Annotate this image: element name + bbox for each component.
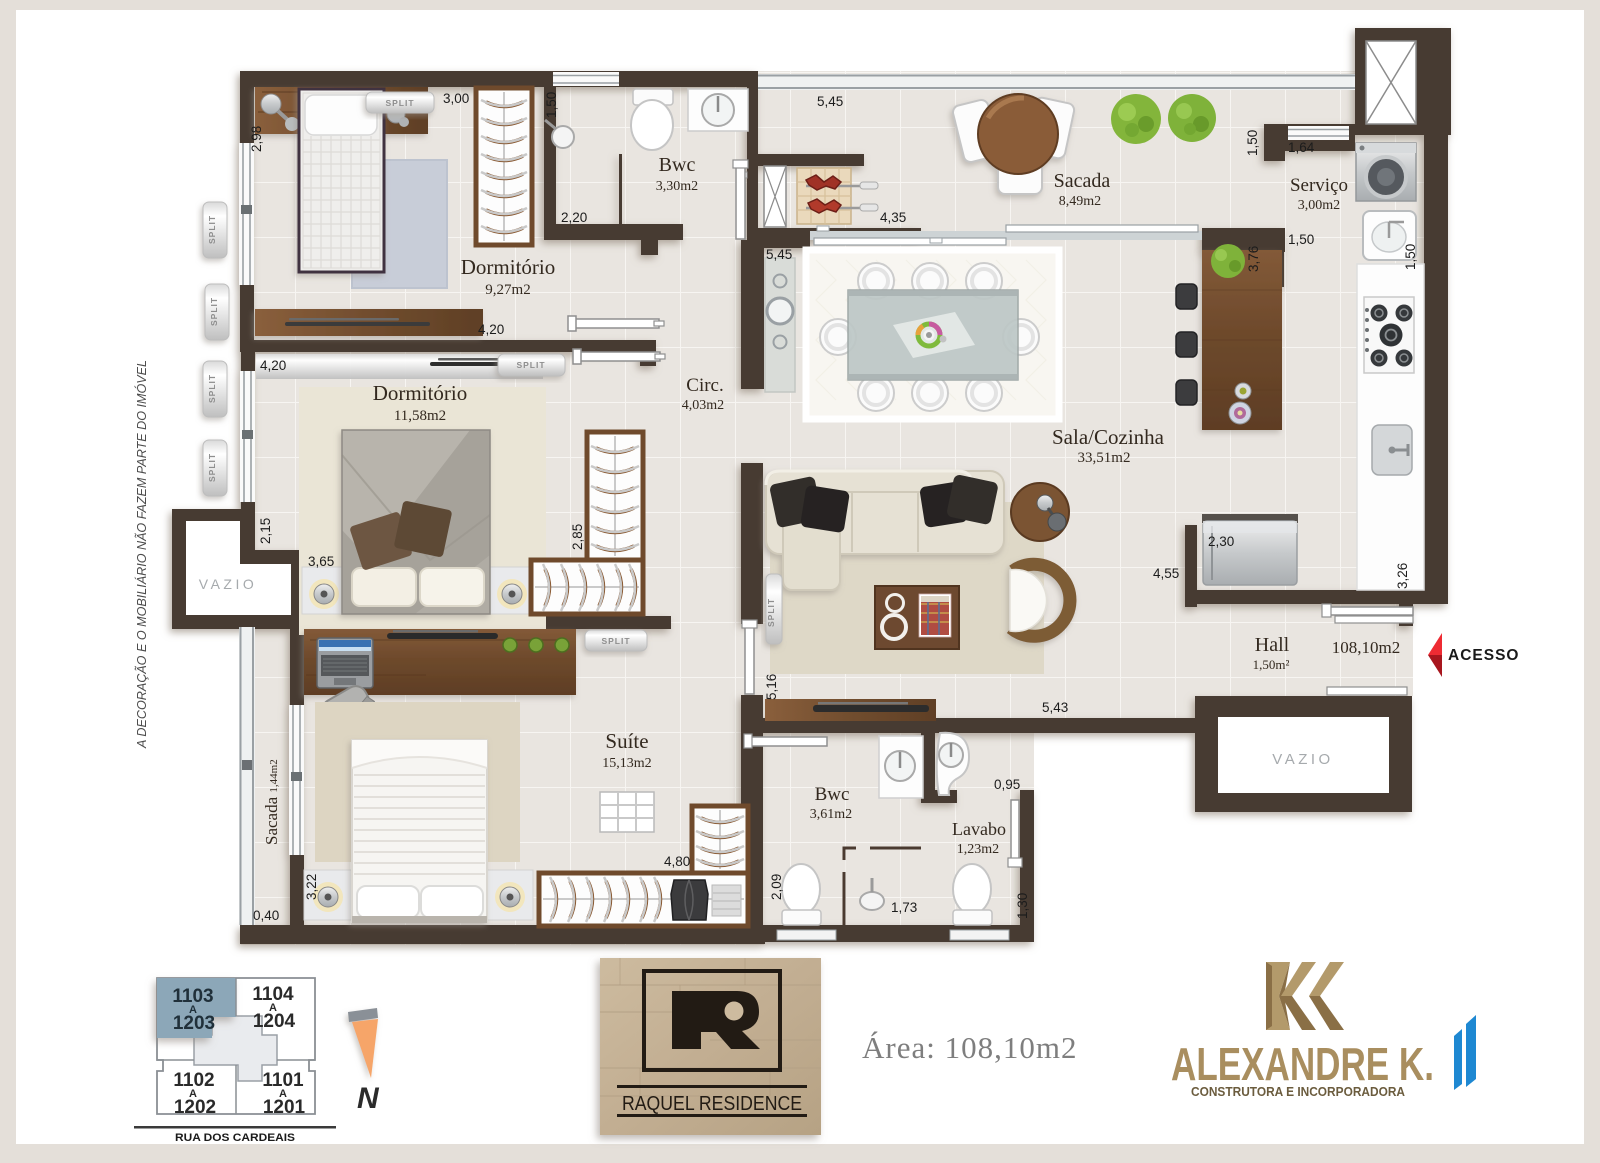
svg-text:4,55: 4,55 [1153,566,1179,581]
svg-text:3,76: 3,76 [1246,246,1261,272]
svg-text:RUA DOS CARDEAIS: RUA DOS CARDEAIS [175,1132,295,1144]
svg-text:Dormitório: Dormitório [373,381,468,405]
svg-text:3,61m2: 3,61m2 [810,807,852,822]
svg-text:Dormitório: Dormitório [461,255,556,279]
svg-text:SPLIT: SPLIT [601,636,630,646]
svg-text:1204: 1204 [253,1011,296,1032]
svg-text:1,50m²: 1,50m² [1253,657,1290,672]
svg-text:108,10m2: 108,10m2 [1332,638,1400,657]
svg-text:SPLIT: SPLIT [516,360,545,370]
svg-text:SPLIT: SPLIT [207,215,217,244]
svg-text:Área: 108,10m2: Área: 108,10m2 [862,1030,1077,1065]
svg-text:ACESSO: ACESSO [1448,647,1519,664]
svg-text:4,20: 4,20 [478,322,504,337]
svg-text:Bwc: Bwc [659,154,696,176]
svg-text:2,85: 2,85 [570,524,585,550]
svg-text:1201: 1201 [263,1097,306,1118]
svg-text:1,23m2: 1,23m2 [957,842,999,857]
svg-text:1,50: 1,50 [1403,244,1418,270]
svg-text:A DECORAÇÃO E O MOBILIÁRIO: A DECORAÇÃO E O MOBILIÁRIO NÃO FAZEM PAR… [134,360,149,749]
svg-text:Serviço: Serviço [1290,175,1348,196]
svg-text:Hall: Hall [1255,634,1290,656]
svg-text:VAZIO: VAZIO [1272,751,1333,768]
svg-text:2,98: 2,98 [249,126,264,152]
svg-text:1,30: 1,30 [1015,893,1030,919]
svg-text:3,22: 3,22 [304,874,319,900]
svg-text:ALEXANDRE K.: ALEXANDRE K. [1171,1038,1434,1090]
svg-text:1,50: 1,50 [1245,130,1260,156]
svg-text:4,35: 4,35 [880,210,906,225]
svg-text:0,95: 0,95 [994,777,1020,792]
svg-text:3,65: 3,65 [308,554,334,569]
svg-text:15,13m2: 15,13m2 [602,756,651,771]
svg-text:VAZIO: VAZIO [199,576,257,592]
svg-text:SPLIT: SPLIT [207,374,217,403]
svg-text:5,16: 5,16 [764,674,779,700]
svg-text:SPLIT: SPLIT [766,598,776,627]
svg-text:2,30: 2,30 [1208,534,1234,549]
svg-text:5,45: 5,45 [817,94,843,109]
svg-text:2,09: 2,09 [769,874,784,900]
svg-text:3,00m2: 3,00m2 [1298,198,1340,213]
svg-text:4,03m2: 4,03m2 [682,398,724,413]
svg-text:4,20: 4,20 [260,358,286,373]
svg-text:2,15: 2,15 [258,518,273,544]
svg-text:CONSTRUTORA E INCORPORADORA: CONSTRUTORA E INCORPORADORA [1191,1085,1405,1099]
svg-text:1,50: 1,50 [1288,232,1314,247]
svg-text:9,27m2: 9,27m2 [485,282,530,298]
svg-text:SPLIT: SPLIT [209,297,219,326]
svg-text:Bwc: Bwc [815,784,850,805]
svg-text:Sacada: Sacada [1054,170,1111,192]
svg-text:11,58m2: 11,58m2 [394,408,446,424]
svg-text:33,51m2: 33,51m2 [1078,450,1131,466]
svg-text:1203: 1203 [173,1013,215,1034]
svg-text:1,64: 1,64 [1288,140,1315,155]
svg-text:Circ.: Circ. [686,375,723,396]
svg-text:3,00: 3,00 [443,91,469,106]
svg-text:4,80: 4,80 [664,854,690,869]
svg-text:3,30m2: 3,30m2 [656,179,698,194]
svg-text:1202: 1202 [174,1097,216,1118]
svg-text:5,45: 5,45 [766,247,792,262]
svg-text:Sala/Cozinha: Sala/Cozinha [1052,425,1165,449]
svg-text:2,20: 2,20 [561,210,587,225]
svg-text:Lavabo: Lavabo [952,819,1006,839]
svg-text:RAQUEL RESIDENCE: RAQUEL RESIDENCE [622,1093,802,1115]
svg-text:SPLIT: SPLIT [207,453,217,482]
svg-text:3,26: 3,26 [1395,563,1410,589]
svg-text:SPLIT: SPLIT [385,98,414,108]
svg-text:N: N [357,1082,380,1115]
svg-text:5,43: 5,43 [1042,700,1068,715]
svg-text:8,49m2: 8,49m2 [1059,194,1101,209]
svg-text:1,50: 1,50 [544,92,559,118]
svg-text:0,40: 0,40 [253,908,279,923]
svg-text:1,73: 1,73 [891,900,917,915]
svg-text:Suíte: Suíte [605,729,648,753]
